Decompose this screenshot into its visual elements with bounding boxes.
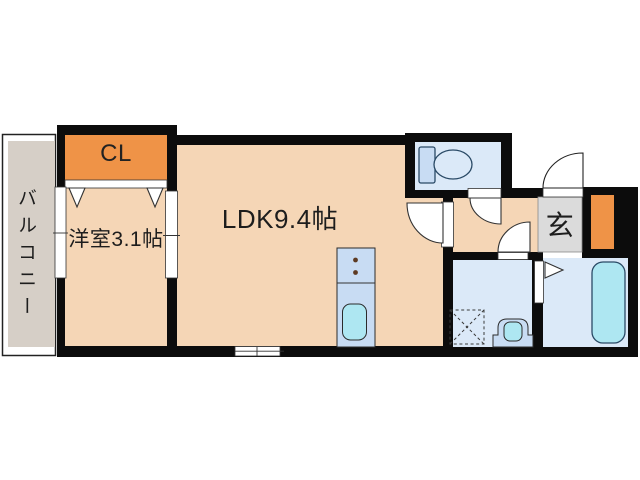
toilet-bowl (434, 150, 472, 179)
bathtub-icon (592, 262, 625, 343)
stove-burner-icon (353, 270, 358, 275)
western-room-label: 洋室3.1帖 (62, 229, 170, 250)
floor-plan: バルコニー CL 洋室3.1帖 LDK9.4帖 玄 (0, 0, 640, 480)
wall (628, 252, 638, 347)
bottom-vent-icon (235, 347, 284, 357)
closet-label: CL (65, 142, 167, 166)
entry-door-icon (543, 153, 583, 197)
wall (500, 188, 543, 198)
western-room-floor (65, 188, 167, 346)
shoe-cabinet (591, 195, 614, 249)
wall (57, 346, 638, 357)
kitchen-counter-icon (337, 248, 375, 347)
stove-burner-icon (353, 258, 358, 263)
closet-door-track (65, 180, 167, 188)
door-leaf (535, 261, 544, 303)
ldk-label: LDK9.4帖 (180, 206, 380, 232)
door-threshold (543, 188, 583, 198)
door-swing-arc (543, 153, 583, 188)
washbasin-bowl (504, 322, 522, 341)
wall (453, 252, 542, 260)
door-leaf (468, 189, 501, 199)
washbasin-icon (493, 319, 533, 347)
kitchen-sink-icon (343, 304, 367, 340)
door-leaf (498, 253, 528, 260)
wall (57, 125, 177, 135)
entrance-label: 玄 (538, 212, 582, 240)
balcony-label: バルコニー (16, 188, 35, 323)
toilet-tank (419, 147, 435, 183)
